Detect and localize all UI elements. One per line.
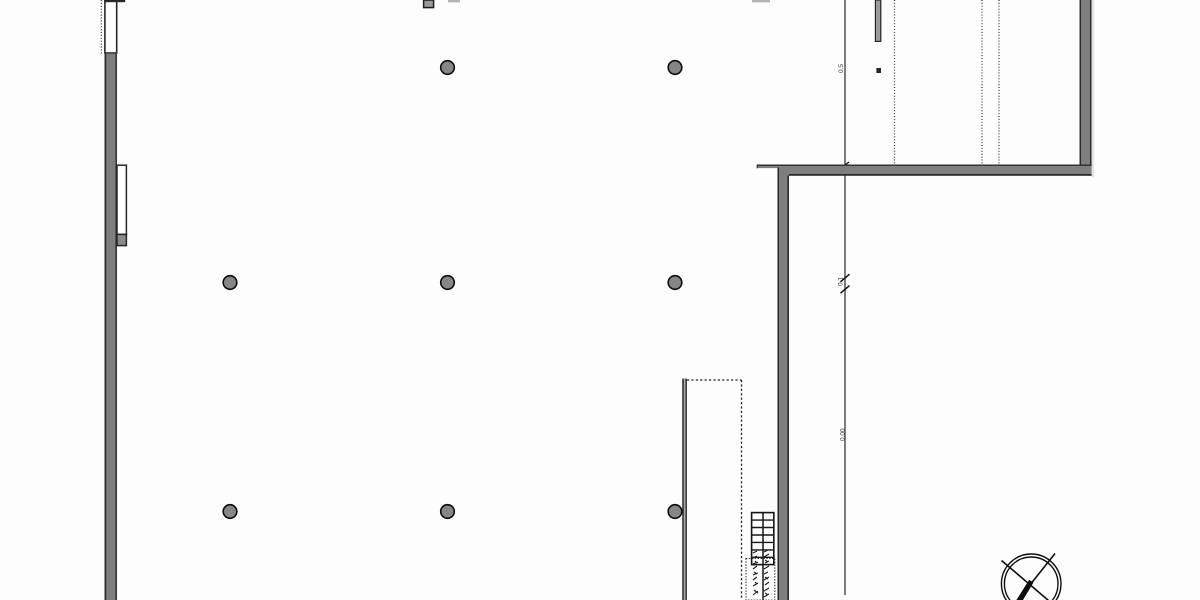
svg-text:0.00: 0.00 xyxy=(840,428,847,441)
svg-text:0.1: 0.1 xyxy=(838,277,845,286)
svg-text:0.5: 0.5 xyxy=(838,64,845,73)
